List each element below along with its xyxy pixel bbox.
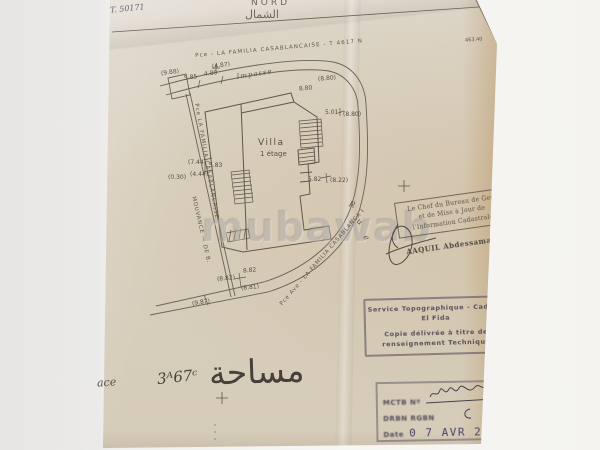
handwritten-scribbles	[0, 0, 600, 450]
signature-scribble	[386, 224, 436, 265]
scanned-plan-photo: mubawab T. 50171 NORD الشمال 463.40 Pce …	[0, 0, 600, 450]
plan-paper-sheet: mubawab T. 50171 NORD الشمال 463.40 Pce …	[0, 0, 600, 450]
date-box-handwriting	[426, 385, 494, 418]
partial-handwriting-left-edge: ace	[97, 375, 117, 389]
